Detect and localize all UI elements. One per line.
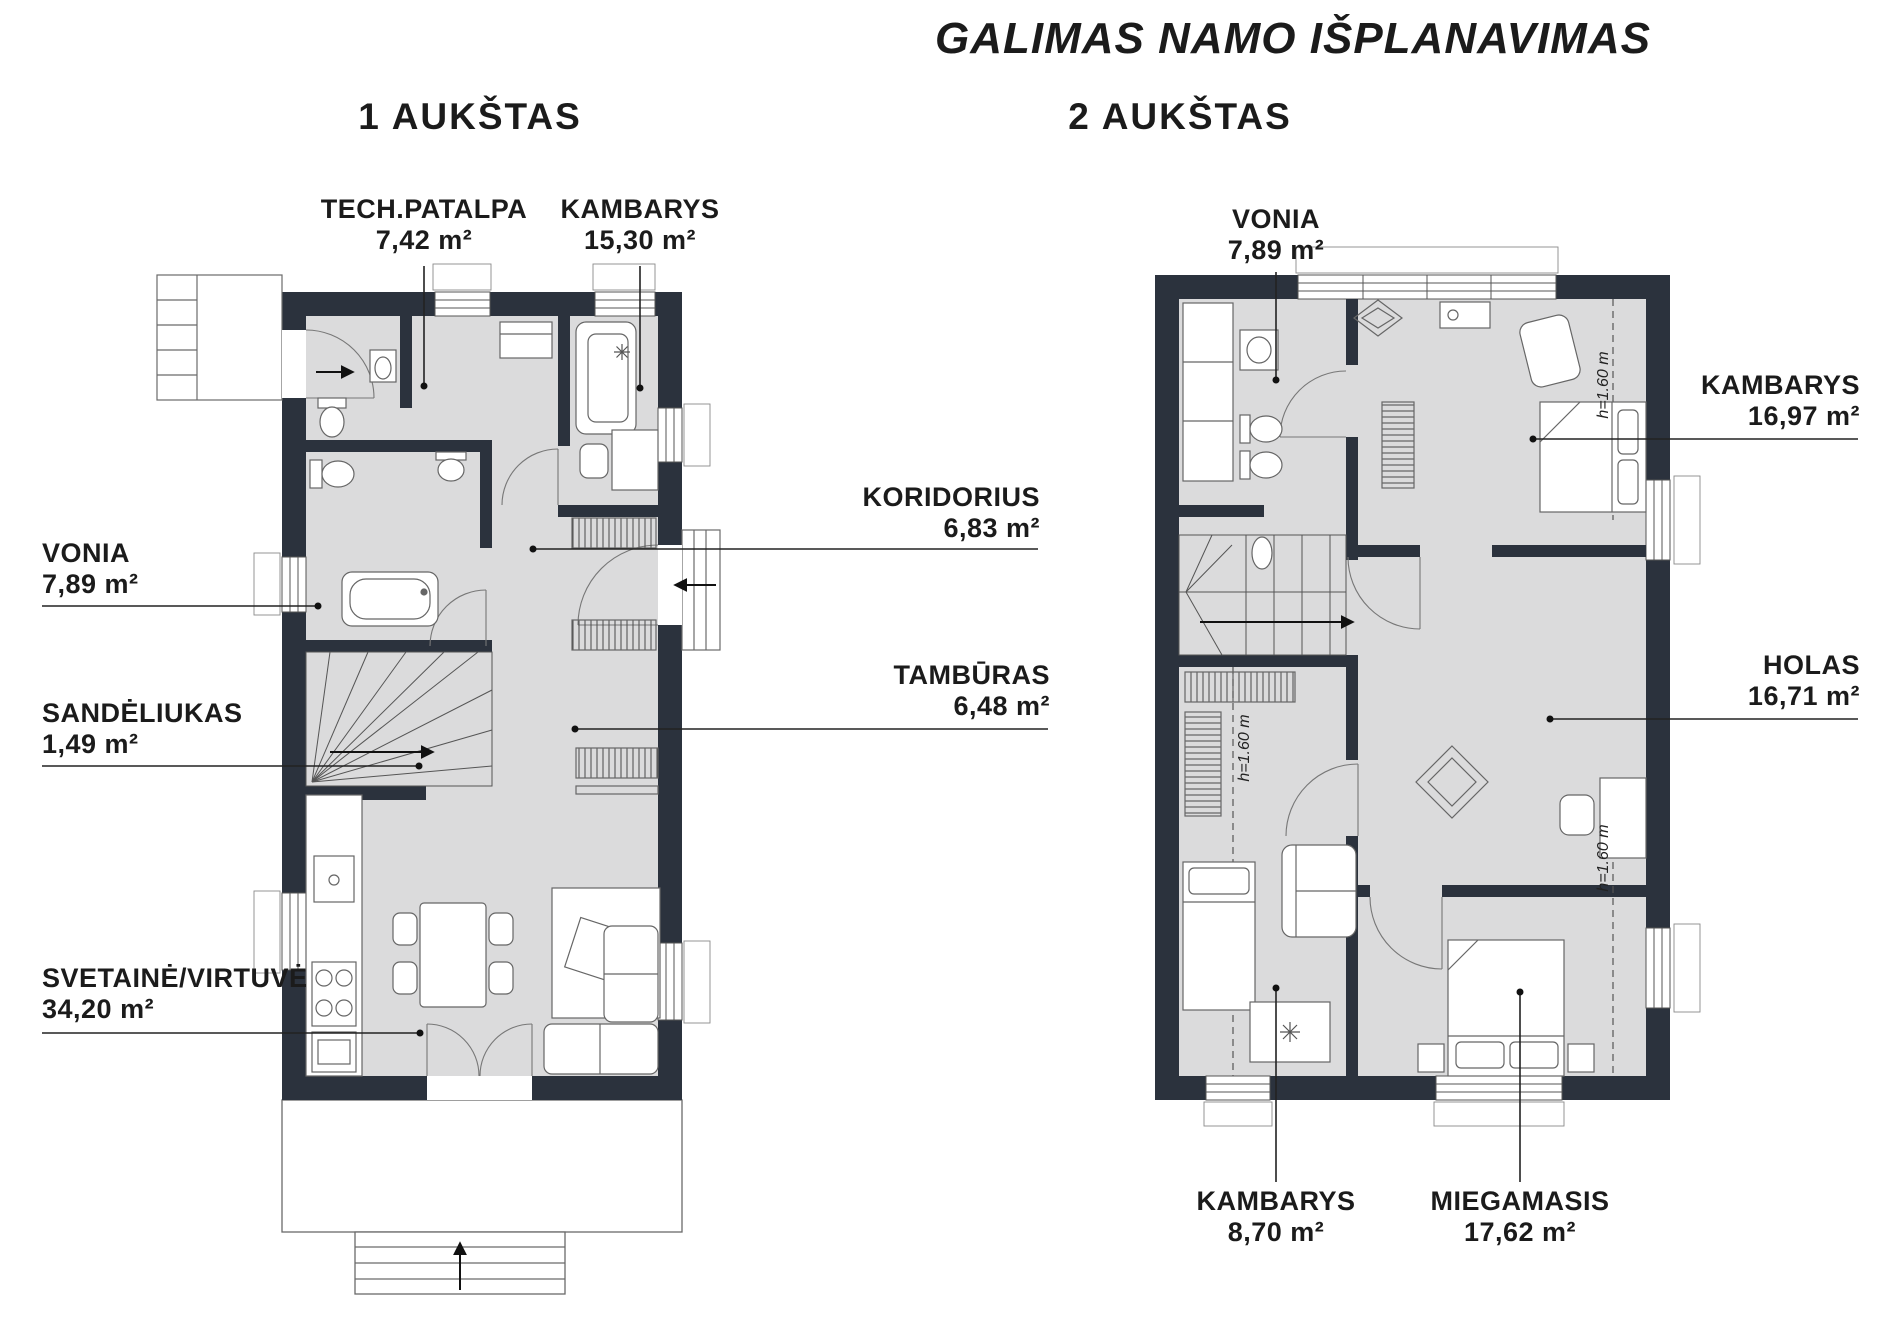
room-name: VONIA: [42, 538, 262, 569]
room-area: 8,70 m²: [1151, 1217, 1401, 1248]
room-name: HOLAS: [1630, 650, 1860, 681]
room-label-miegamasis: MIEGAMASIS 17,62 m²: [1395, 1186, 1645, 1248]
terrace: [282, 1100, 682, 1294]
room-label-vonia-2: VONIA 7,89 m²: [1151, 204, 1401, 266]
room-label-vonia-1: VONIA 7,89 m²: [42, 538, 262, 600]
room-label-holas: HOLAS 16,71 m²: [1630, 650, 1860, 712]
room-label-tech-patalpa: TECH.PATALPA 7,42 m²: [299, 194, 549, 256]
floor1-title: 1 AUKŠTAS: [270, 96, 670, 138]
room-label-sandeliukas: SANDĖLIUKAS 1,49 m²: [42, 698, 302, 760]
room-name: TECH.PATALPA: [299, 194, 549, 225]
room-area: 6,48 m²: [820, 691, 1050, 722]
room-area: 34,20 m²: [42, 994, 332, 1025]
room-label-kambarys-3: KAMBARYS 8,70 m²: [1151, 1186, 1401, 1248]
room-name: TAMBŪRAS: [820, 660, 1050, 691]
room-area: 7,89 m²: [42, 569, 262, 600]
room-name: KAMBARYS: [1630, 370, 1860, 401]
page-title: GALIMAS NAMO IŠPLANAVIMAS: [935, 14, 1555, 64]
room-name: KORIDORIUS: [810, 482, 1040, 513]
height-annotation-2: h=1.60 m: [1233, 688, 1257, 808]
floor-plan-2: [1155, 247, 1700, 1126]
room-label-kambarys-1: KAMBARYS 15,30 m²: [515, 194, 765, 256]
floor-plan-sheet: { "title": "GALIMAS NAMO IŠPLANAVIMAS", …: [0, 0, 1900, 1344]
room-area: 15,30 m²: [515, 225, 765, 256]
room-label-tamburas: TAMBŪRAS 6,48 m²: [820, 660, 1050, 722]
room-name: MIEGAMASIS: [1395, 1186, 1645, 1217]
room-area: 6,83 m²: [810, 513, 1040, 544]
room-label-svetaine-virtuve: SVETAINĖ/VIRTUVĖ 34,20 m²: [42, 963, 332, 1025]
room-name: KAMBARYS: [1151, 1186, 1401, 1217]
room-label-koridorius: KORIDORIUS 6,83 m²: [810, 482, 1040, 544]
height-annotation-3: h=1.60 m: [1592, 798, 1616, 918]
height-annotation-1: h=1.60 m: [1592, 325, 1616, 445]
room-label-kambarys-2: KAMBARYS 16,97 m²: [1630, 370, 1860, 432]
entry-porch-right: [682, 530, 720, 650]
room-area: 1,49 m²: [42, 729, 302, 760]
room-area: 7,89 m²: [1151, 235, 1401, 266]
room-name: KAMBARYS: [515, 194, 765, 225]
room-name: SANDĖLIUKAS: [42, 698, 302, 729]
room-area: 16,97 m²: [1630, 401, 1860, 432]
room-area: 7,42 m²: [299, 225, 549, 256]
entry-porch-left: [157, 275, 282, 400]
room-area: 16,71 m²: [1630, 681, 1860, 712]
room-area: 17,62 m²: [1395, 1217, 1645, 1248]
floor2-title: 2 AUKŠTAS: [980, 96, 1380, 138]
floor-plan-1: [157, 264, 720, 1294]
room-name: VONIA: [1151, 204, 1401, 235]
room-name: SVETAINĖ/VIRTUVĖ: [42, 963, 332, 994]
